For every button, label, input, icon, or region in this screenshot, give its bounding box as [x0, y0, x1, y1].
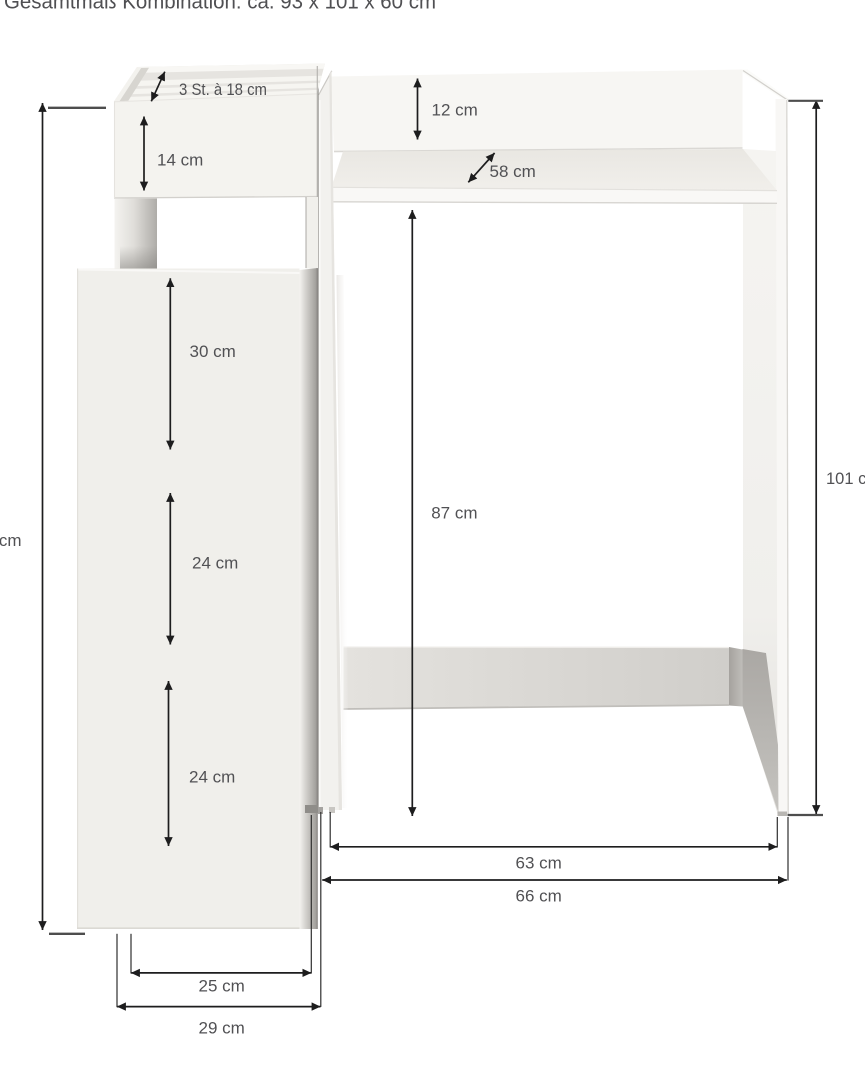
- svg-text:14 cm: 14 cm: [157, 151, 203, 170]
- svg-text:93 cm: 93 cm: [0, 531, 22, 550]
- svg-text:101 cm: 101 cm: [826, 470, 865, 488]
- svg-text:29 cm: 29 cm: [199, 1019, 245, 1038]
- svg-text:Gesamtmaß Kombination: ca. 93: Gesamtmaß Kombination: ca. 93 x 101 x 60…: [4, 0, 436, 14]
- svg-text:30 cm: 30 cm: [190, 342, 236, 361]
- svg-text:66 cm: 66 cm: [516, 887, 562, 906]
- svg-text:87 cm: 87 cm: [431, 504, 477, 523]
- svg-text:63 cm: 63 cm: [516, 854, 562, 873]
- svg-text:24 cm: 24 cm: [192, 554, 238, 573]
- svg-text:58 cm: 58 cm: [490, 162, 536, 181]
- svg-text:3 St. à 18 cm: 3 St. à 18 cm: [179, 80, 267, 99]
- svg-text:24 cm: 24 cm: [189, 768, 235, 787]
- svg-text:25 cm: 25 cm: [199, 977, 245, 996]
- svg-text:12 cm: 12 cm: [432, 101, 478, 120]
